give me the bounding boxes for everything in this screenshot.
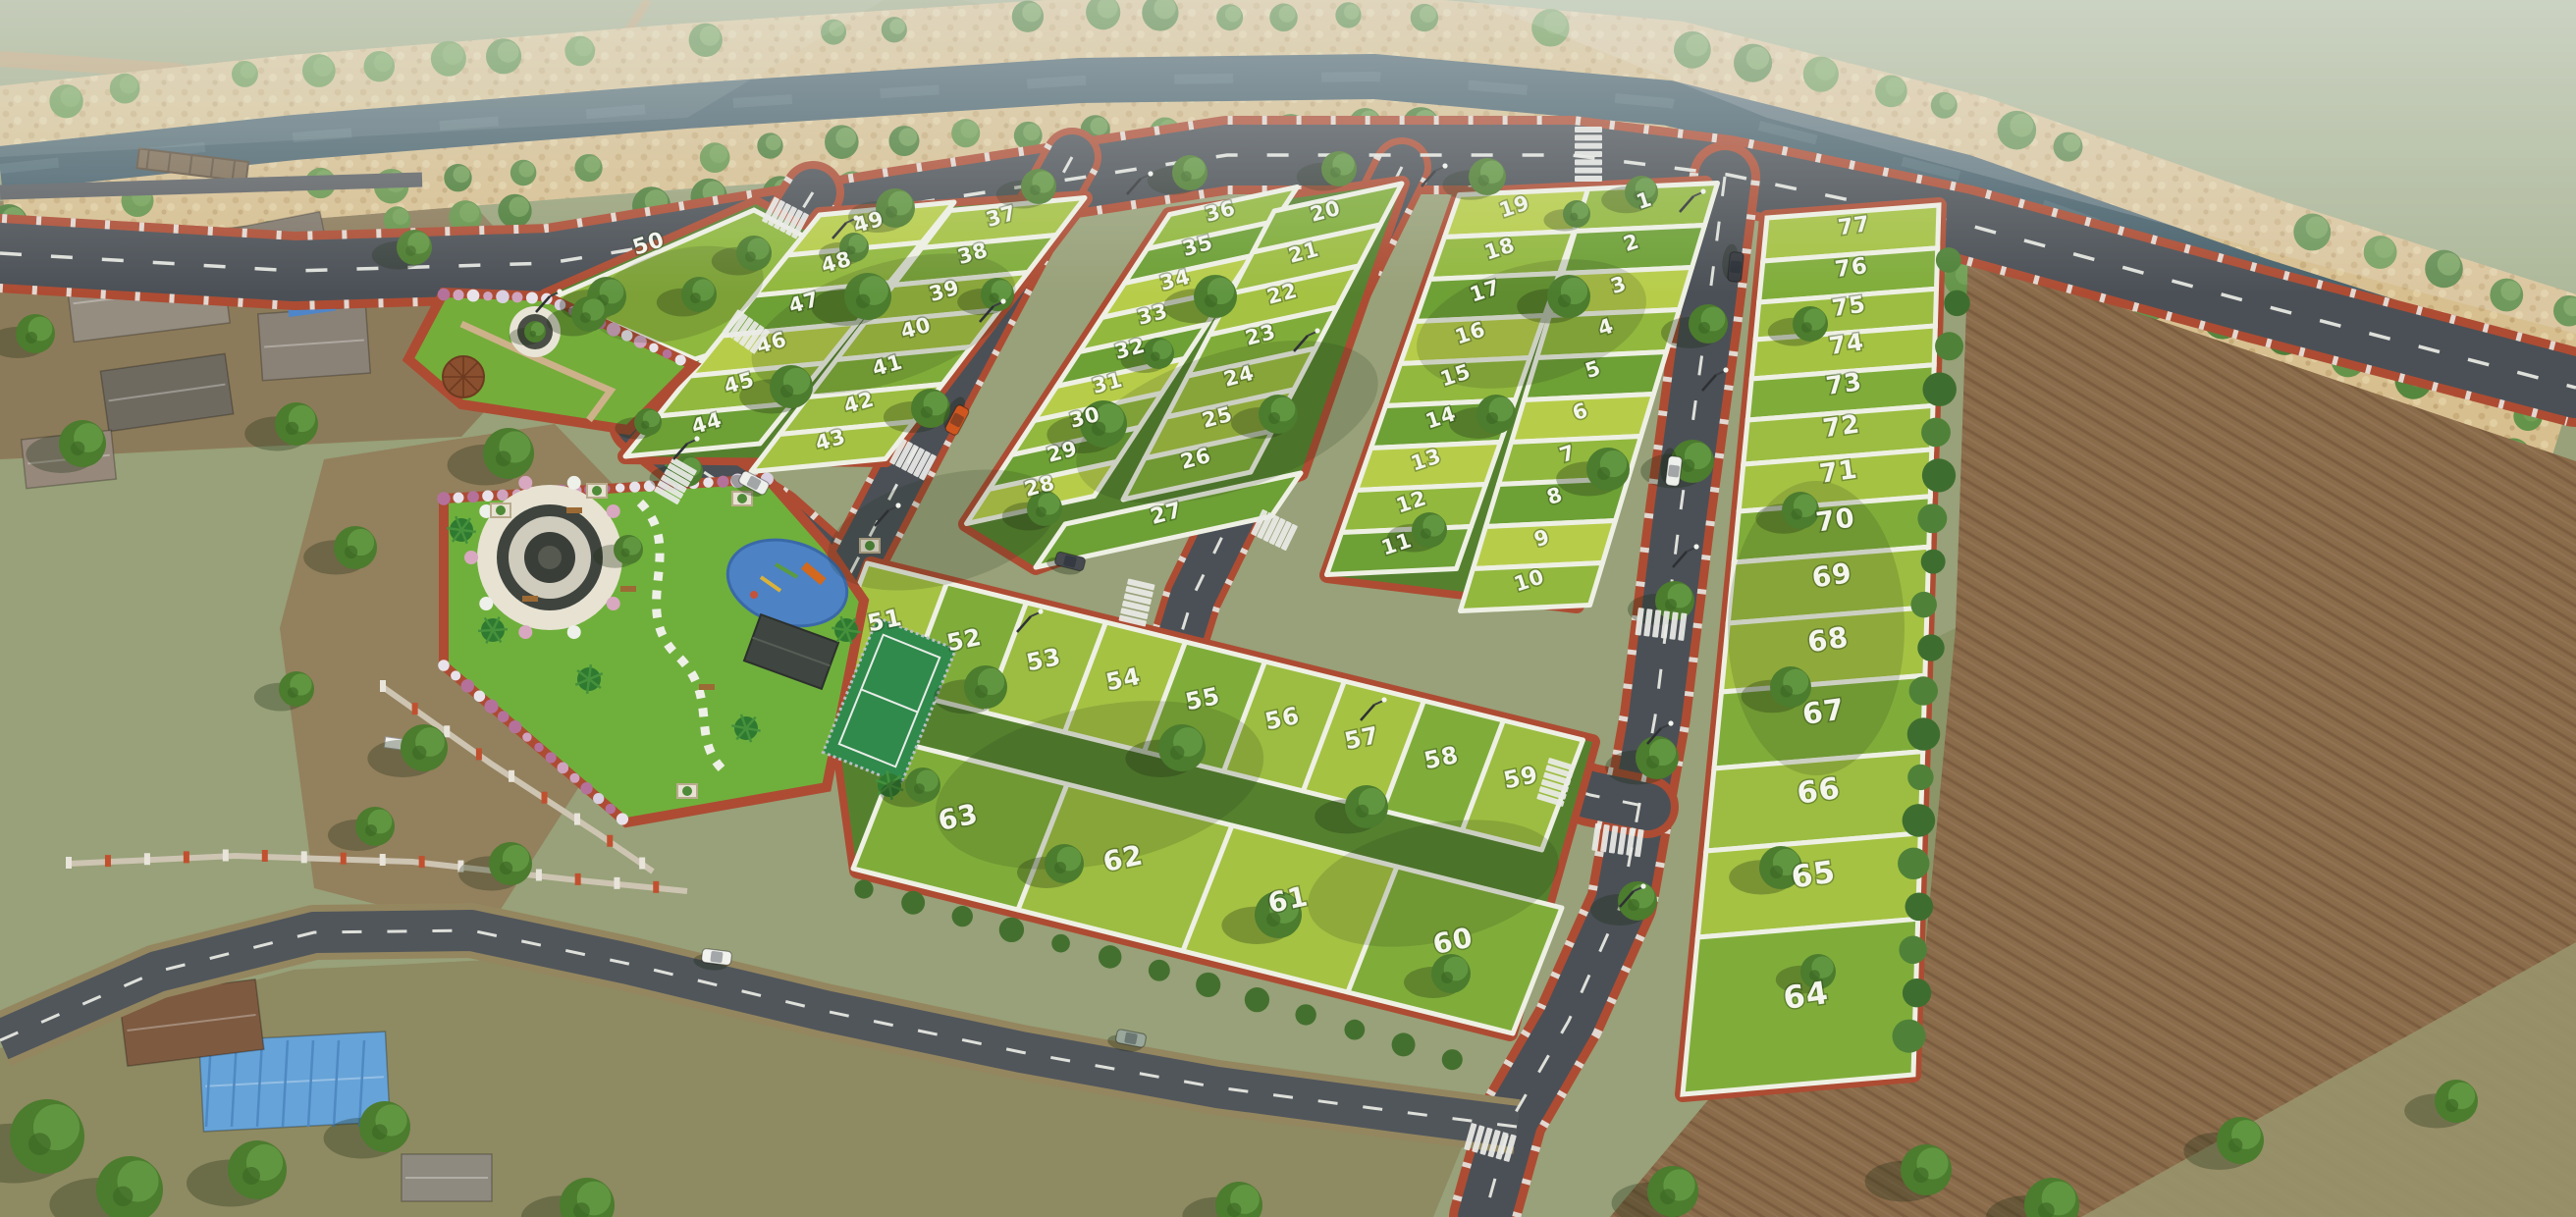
- tree: [634, 408, 662, 436]
- hedge: [1922, 458, 1956, 492]
- plot-label: 66: [1795, 771, 1843, 812]
- site-plan-svg: 5049484746454437383940414243363534333231…: [0, 0, 2576, 1217]
- hedge: [1903, 804, 1936, 837]
- hedge: [1917, 503, 1947, 533]
- tree: [279, 671, 314, 707]
- tree: [770, 365, 813, 408]
- tree: [1689, 304, 1728, 344]
- plot-label: 65: [1789, 855, 1838, 896]
- tree: [1045, 844, 1084, 883]
- gazebo: [443, 356, 484, 397]
- hedge: [1935, 332, 1963, 360]
- bench: [699, 684, 715, 690]
- tree: [16, 314, 55, 353]
- tree: [1476, 395, 1516, 434]
- tree: [1586, 448, 1630, 491]
- plot-label: 73: [1824, 367, 1863, 400]
- plot-label: 75: [1830, 291, 1867, 323]
- tree: [10, 1099, 84, 1174]
- tree: [1901, 1144, 1952, 1195]
- bench: [566, 507, 582, 513]
- hedge: [1903, 979, 1931, 1007]
- plot-label: 69: [1810, 556, 1854, 594]
- house-roof: [402, 1154, 492, 1201]
- tree: [1345, 785, 1388, 828]
- hedge: [1910, 592, 1936, 617]
- tree: [483, 428, 534, 479]
- hedge: [1905, 892, 1933, 921]
- hedge: [1907, 717, 1941, 751]
- tree: [1636, 736, 1679, 779]
- house-roof: [258, 306, 370, 381]
- tree: [355, 807, 395, 846]
- tree: [1259, 395, 1298, 434]
- circular-lawn-feature: [538, 546, 562, 569]
- tree: [1647, 1166, 1698, 1217]
- hedge: [1922, 372, 1956, 405]
- tree: [571, 296, 607, 332]
- tree: [524, 321, 546, 343]
- hedge: [1907, 765, 1933, 790]
- plot-label: 70: [1814, 503, 1857, 538]
- tree: [2217, 1117, 2264, 1164]
- haze-overlay: [0, 0, 2576, 334]
- tree: [905, 767, 940, 803]
- tree: [1143, 338, 1174, 369]
- tree: [228, 1140, 287, 1199]
- plot-label: 67: [1800, 692, 1847, 731]
- tree: [614, 535, 643, 564]
- hedge: [1921, 550, 1946, 574]
- hedge: [1893, 1020, 1926, 1053]
- hedge: [1917, 634, 1944, 661]
- hedge: [1921, 418, 1951, 448]
- tree: [359, 1101, 410, 1152]
- plot-label: 64: [1781, 976, 1831, 1017]
- bench: [522, 596, 538, 602]
- aerial-site-plan-render: 5049484746454437383940414243363534333231…: [0, 0, 2576, 1217]
- tree: [334, 526, 377, 569]
- bench: [620, 586, 636, 592]
- plot-label: 71: [1818, 454, 1860, 490]
- tree: [1412, 512, 1447, 548]
- hedge: [1909, 676, 1938, 705]
- plot-label: 74: [1827, 327, 1865, 360]
- tree: [489, 842, 532, 885]
- plot-label: 68: [1805, 620, 1851, 660]
- tree: [59, 420, 106, 467]
- tree: [2435, 1080, 2478, 1123]
- hedge: [1898, 848, 1929, 879]
- tree: [964, 665, 1007, 709]
- tree: [275, 402, 318, 446]
- tree: [1793, 306, 1828, 342]
- hedge: [1899, 935, 1927, 964]
- plot-label: 72: [1821, 409, 1862, 444]
- tree: [1158, 724, 1206, 771]
- tree: [401, 724, 448, 771]
